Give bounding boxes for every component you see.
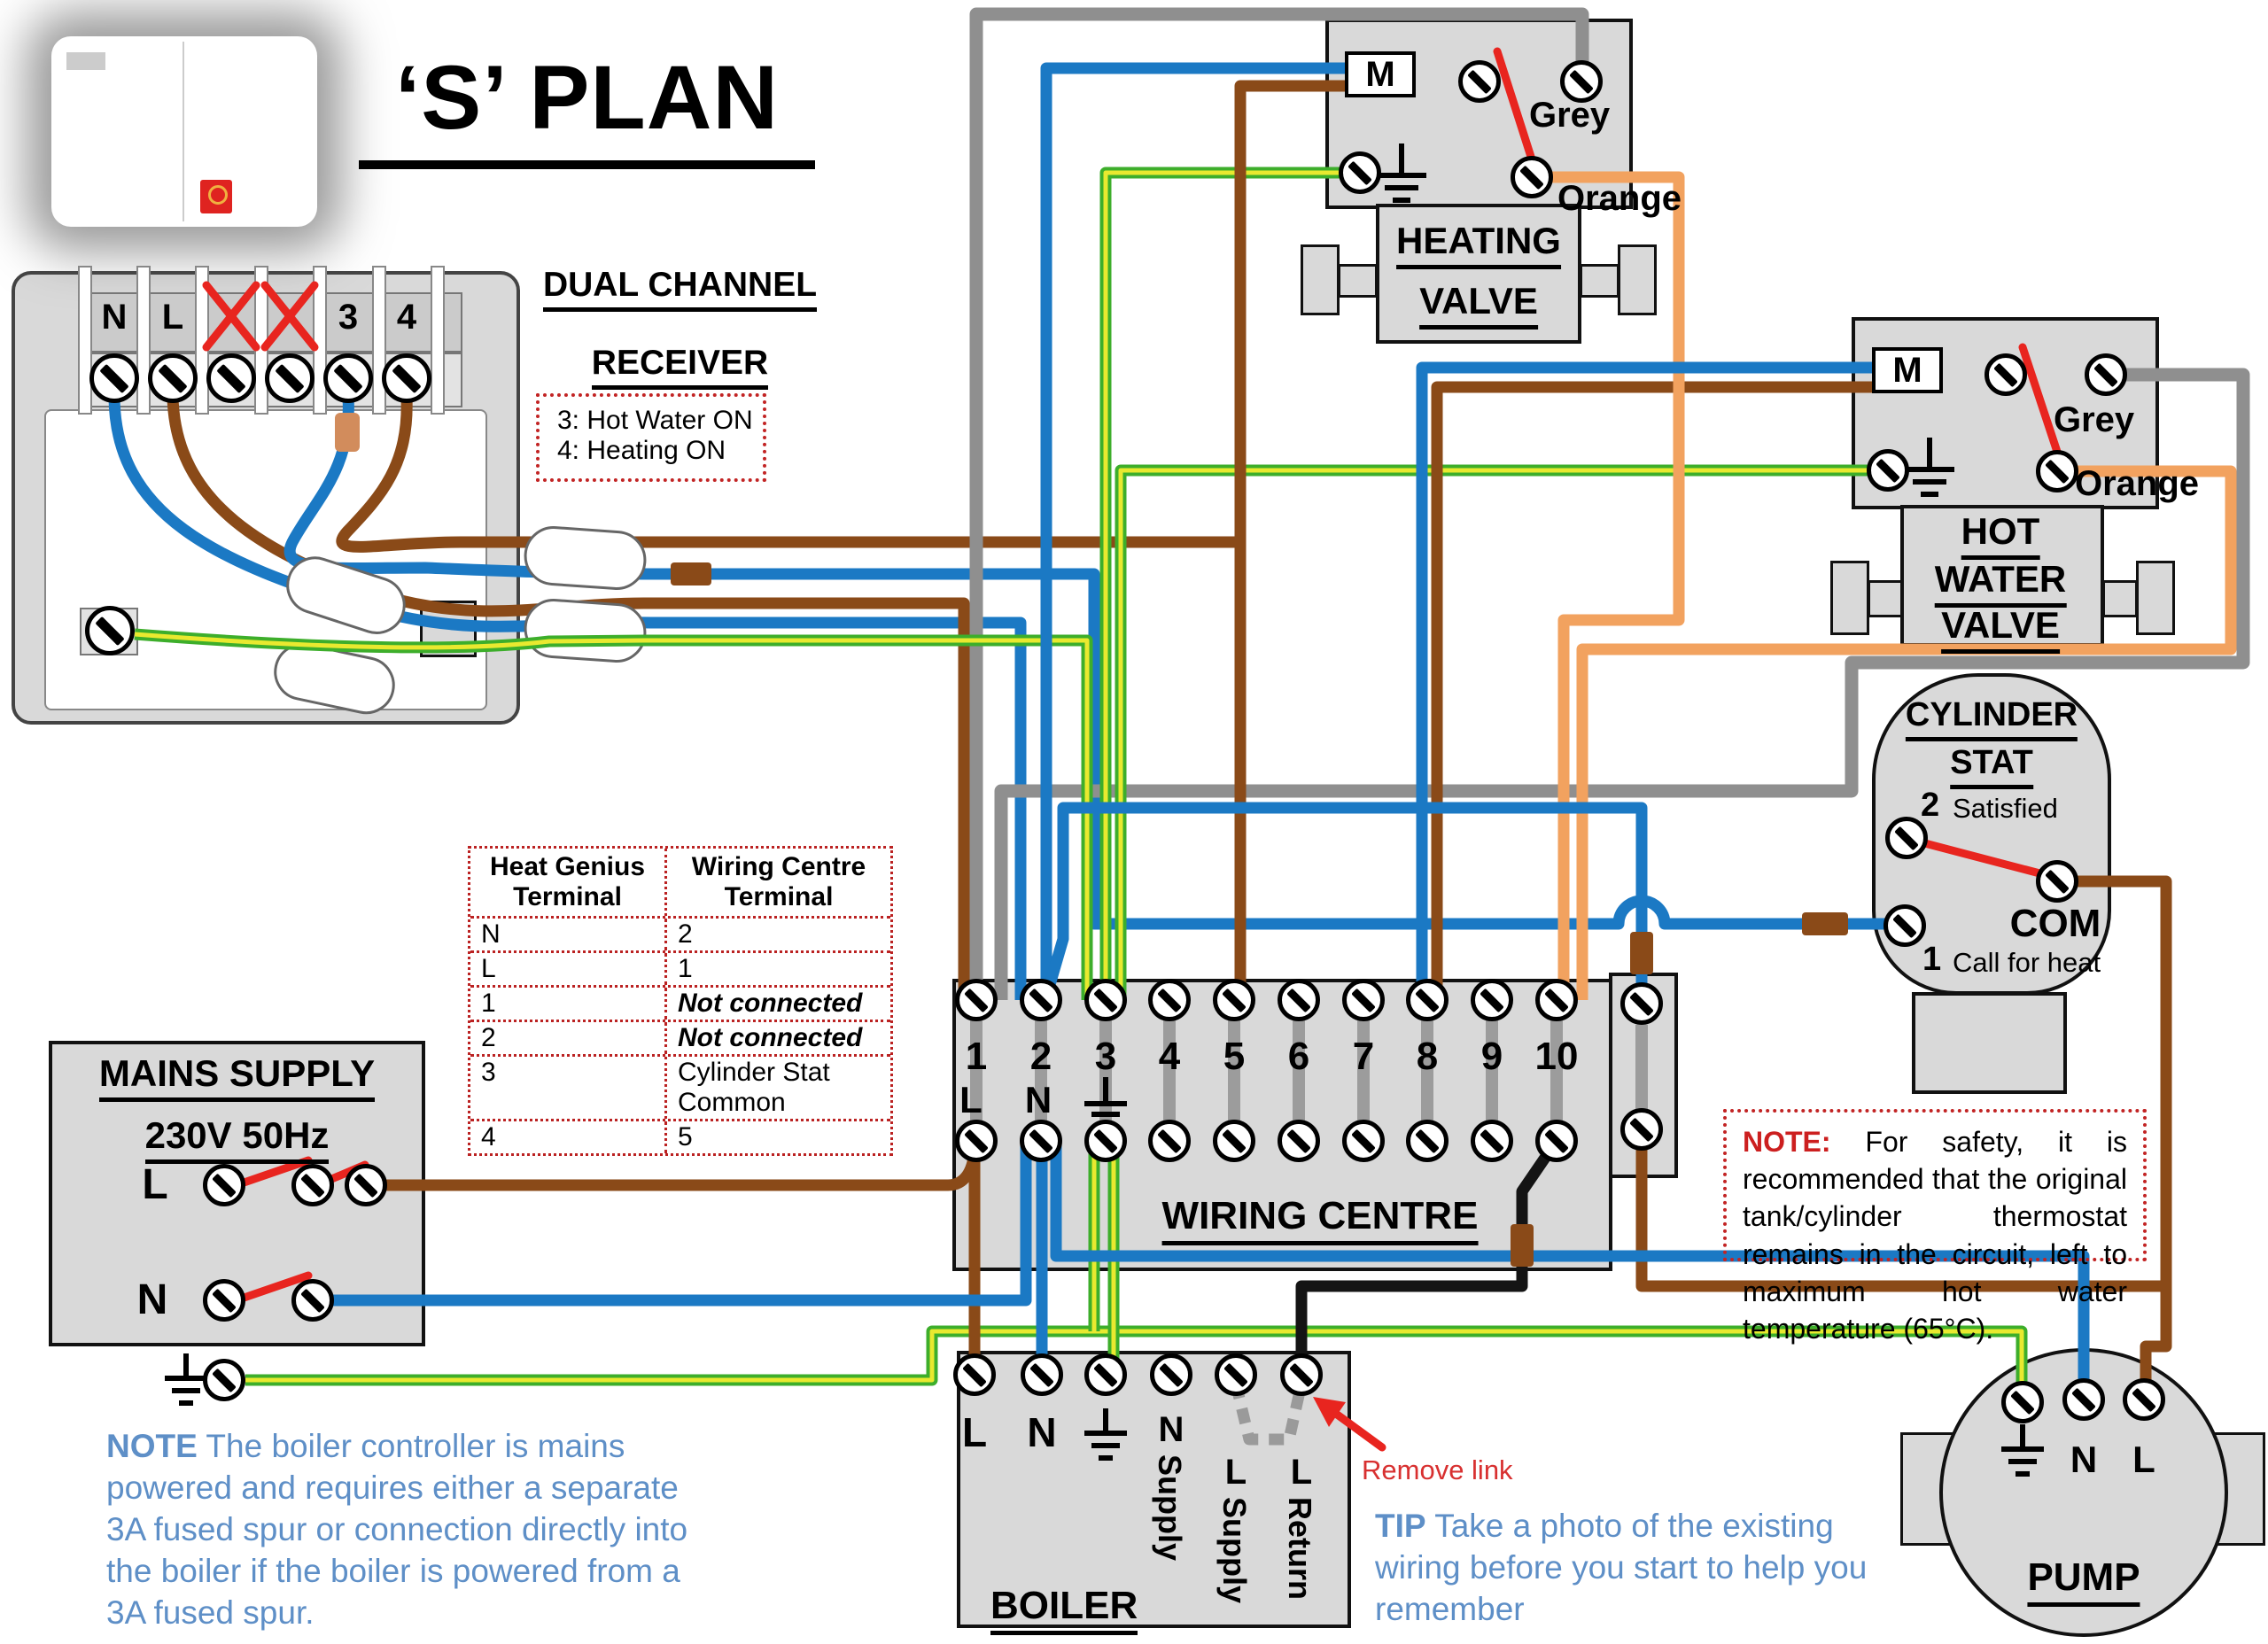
screw-terminal [1084, 979, 1127, 1021]
wc-num-1: 1 [966, 1035, 987, 1079]
screw-terminal [291, 1279, 334, 1322]
screw-terminal [1984, 353, 2027, 396]
tip-note: TIP Take a photo of the existing wiring … [1375, 1506, 1907, 1631]
separator-bar [136, 266, 151, 415]
screw-terminal [1278, 1120, 1320, 1162]
separator-bar [313, 266, 327, 415]
screw-terminal [1215, 1353, 1257, 1396]
wc-num-4: 4 [1159, 1035, 1180, 1079]
wire-t5-heating-motor [1240, 86, 1345, 1000]
receiver-heading-line1: DUAL CHANNEL [543, 266, 817, 312]
s-plan-wiring-diagram: ‘S’ PLAN N L 3 4 DUAL CHANNEL RECEIVER 3… [0, 0, 2268, 1644]
screw-terminal [2001, 1381, 2044, 1423]
screw-terminal [1342, 1120, 1385, 1162]
table-row: 3Cylinder Stat Common [470, 1054, 890, 1119]
wc-num-10: 10 [1535, 1035, 1579, 1079]
wc-num-9: 9 [1481, 1035, 1503, 1079]
cylinder-stat-title2: STAT [1950, 744, 2033, 782]
terminal-link-bar [1635, 1025, 1648, 1112]
receiver-terminal-3: 3 [338, 298, 358, 337]
tip-text: Take a photo of the existing wiring befo… [1375, 1508, 1867, 1627]
boiler-lsupply-letter: L [1225, 1453, 1247, 1493]
screw-terminal [1148, 1120, 1191, 1162]
screw-terminal [1458, 60, 1501, 103]
receiver-terminal-4: 4 [397, 298, 416, 337]
earth-symbol-mains [165, 1353, 207, 1403]
wc-num-8: 8 [1417, 1035, 1438, 1079]
table-row: N2 [470, 916, 890, 950]
tip-label: TIP [1375, 1508, 1426, 1544]
screw-terminal [1084, 1353, 1127, 1396]
pump-l-label: L [2132, 1438, 2155, 1481]
receiver-terminal-l: L [162, 298, 183, 337]
screw-terminal [1511, 156, 1553, 198]
legend-line2: 4: Heating ON [557, 436, 763, 466]
receiver-terminal-n: N [102, 298, 128, 337]
mains-subtitle: 230V 50Hz [49, 1114, 425, 1157]
cylinder-stat-2: 2 [1921, 787, 1939, 825]
safety-note-label: NOTE: [1743, 1126, 1831, 1158]
screw-terminal [345, 1164, 387, 1206]
wire-heating-motor-blue [1046, 68, 1345, 1000]
screw-terminal [2036, 860, 2078, 903]
hw-valve-title2: WATER [1935, 558, 2067, 601]
wc-num-2: 2 [1030, 1035, 1052, 1079]
hw-valve-motor-label: M [1892, 351, 1922, 391]
heating-valve-pipe-right [1580, 264, 1619, 298]
screw-terminal [148, 353, 198, 403]
separator-bar [78, 266, 92, 415]
boiler-l-label: L [962, 1408, 987, 1456]
screw-terminal [89, 353, 139, 403]
screw-terminal [382, 353, 431, 403]
wc-num-5: 5 [1223, 1035, 1245, 1079]
wc-num-3: 3 [1095, 1035, 1116, 1079]
wc-n-label: N [1025, 1079, 1052, 1121]
cylinder-stat-1: 1 [1922, 941, 1941, 979]
boiler-lsupply-word: Supply [1216, 1497, 1253, 1603]
table-row: 45 [470, 1119, 890, 1153]
screw-terminal [1020, 979, 1062, 1021]
heat-genius-logo-icon [200, 180, 232, 213]
boiler-note-label: NOTE [106, 1428, 198, 1464]
screw-terminal [1620, 1108, 1663, 1151]
screw-terminal [2085, 353, 2127, 396]
screw-terminal [1406, 979, 1449, 1021]
screw-terminal [1342, 979, 1385, 1021]
hw-valve-title3: VALVE [1941, 604, 2060, 647]
mains-n-label: N [137, 1276, 168, 1324]
screw-terminal [1213, 1120, 1255, 1162]
heating-valve-flange-right [1618, 244, 1657, 315]
screw-terminal [2123, 1378, 2165, 1421]
screw-terminal [1867, 449, 1909, 492]
receiver-cable-clamp [420, 601, 477, 657]
separator-bar [372, 266, 386, 415]
cylinder-stat-com: COM [2010, 902, 2101, 946]
device-display [66, 52, 105, 70]
legend-line1: 3: Hot Water ON [557, 406, 763, 436]
table-row: 1Not connected [470, 985, 890, 1020]
hw-valve-orange-label: Orange [2075, 464, 2199, 504]
hw-valve-grey-label: Grey [2054, 400, 2134, 440]
heating-valve-title2: VALVE [1419, 280, 1538, 322]
heating-valve-flange-left [1301, 244, 1340, 315]
boiler-n-label: N [1027, 1408, 1056, 1456]
remove-link-label: Remove link [1362, 1454, 1513, 1486]
pump-title: PUMP [2027, 1555, 2140, 1600]
screw-terminal [1535, 1120, 1578, 1162]
terminal-mapping-table: Heat Genius TerminalWiring Centre Termin… [468, 846, 893, 1156]
heating-valve-orange-label: Orange [1557, 179, 1682, 219]
separator-bar [431, 266, 445, 415]
heating-valve-title1: HEATING [1396, 220, 1561, 262]
screw-terminal [206, 353, 256, 403]
heat-genius-device [51, 36, 317, 227]
boiler-nsupply-word: Supply [1151, 1454, 1188, 1561]
receiver-heading-line2: RECEIVER [592, 344, 768, 390]
screw-terminal [291, 1164, 334, 1206]
screw-terminal [1213, 979, 1255, 1021]
wc-num-7: 7 [1353, 1035, 1374, 1079]
heating-valve-grey-label: Grey [1529, 96, 1610, 136]
screw-terminal [1471, 1120, 1513, 1162]
page-title: ‘S’ PLAN [359, 46, 815, 169]
receiver-heading: DUAL CHANNEL RECEIVER [527, 266, 833, 383]
screw-terminal [1021, 1353, 1063, 1396]
mains-l-label: L [142, 1160, 167, 1209]
wire-t2-aux-block [1045, 808, 1642, 1004]
screw-terminal [1620, 982, 1663, 1025]
hw-valve-pipe-left [1868, 580, 1903, 617]
pump-n-label: N [2070, 1438, 2097, 1481]
screw-terminal [1471, 979, 1513, 1021]
device-divider [183, 42, 184, 221]
screw-terminal [323, 353, 373, 403]
hw-valve-flange-right [2136, 561, 2175, 635]
boiler-title: BOILER [990, 1584, 1138, 1628]
screw-terminal [1406, 1120, 1449, 1162]
receiver-panel [44, 409, 487, 710]
safety-note: NOTE: For safety, it is recommended that… [1723, 1109, 2147, 1261]
screw-terminal [955, 979, 998, 1021]
hw-valve-title1: HOT [1961, 510, 2040, 553]
table-row: 2Not connected [470, 1020, 890, 1054]
cylinder-stat-satisfied: Satisfied [1953, 793, 2058, 825]
screw-terminal [1020, 1120, 1062, 1162]
screw-terminal [2062, 1378, 2105, 1421]
separator-bar [254, 266, 268, 415]
boiler-note: NOTE The boiler controller is mains powe… [106, 1426, 718, 1634]
table-head-1: Heat Genius Terminal [470, 849, 667, 916]
screw-terminal [203, 1359, 245, 1401]
mains-title: MAINS SUPPLY [49, 1052, 425, 1095]
table-row: L1 [470, 950, 890, 985]
screw-terminal [85, 606, 135, 655]
receiver-legend: 3: Hot Water ON 4: Heating ON [536, 393, 766, 482]
screw-terminal [1084, 1120, 1127, 1162]
wire-receiver-3-to-stat [290, 397, 1907, 924]
wiring-centre-title: WIRING CENTRE [1162, 1194, 1479, 1238]
safety-note-text: For safety, it is recommended that the o… [1743, 1126, 2127, 1345]
boiler-lreturn-word: Return [1281, 1497, 1318, 1600]
cylinder-stat-title1: CYLINDER [1906, 696, 2078, 734]
screw-terminal [955, 1120, 998, 1162]
screw-terminal [203, 1164, 245, 1206]
screw-terminal [953, 1353, 996, 1396]
cylinder-stat-phial [1912, 992, 2067, 1094]
screw-terminal [1535, 979, 1578, 1021]
separator-bar [195, 266, 209, 415]
screw-terminal [1339, 151, 1381, 194]
hw-valve-flange-left [1830, 561, 1869, 635]
table-head-2: Wiring Centre Terminal [667, 849, 890, 916]
wc-l-label: L [959, 1079, 983, 1121]
heating-valve-motor-label: M [1365, 55, 1394, 95]
heating-valve-pipe-left [1338, 264, 1378, 298]
screw-terminal [2036, 450, 2078, 492]
screw-terminal [1884, 904, 1926, 947]
screw-terminal [265, 353, 315, 403]
screw-terminal [1278, 979, 1320, 1021]
wire-hw-motor-blue [1422, 368, 1872, 1000]
cylinder-stat-call: Call for heat [1953, 947, 2101, 979]
boiler-lreturn-letter: L [1291, 1453, 1312, 1493]
wire-hw-motor-brown [1437, 387, 1872, 1000]
boiler-nsupply-letter: N [1159, 1410, 1184, 1450]
screw-terminal [203, 1279, 245, 1322]
hw-valve-pipe-right [2102, 580, 2138, 617]
screw-terminal [1280, 1353, 1323, 1396]
wc-num-6: 6 [1288, 1035, 1309, 1079]
screw-terminal [1148, 979, 1191, 1021]
screw-terminal [1150, 1353, 1192, 1396]
